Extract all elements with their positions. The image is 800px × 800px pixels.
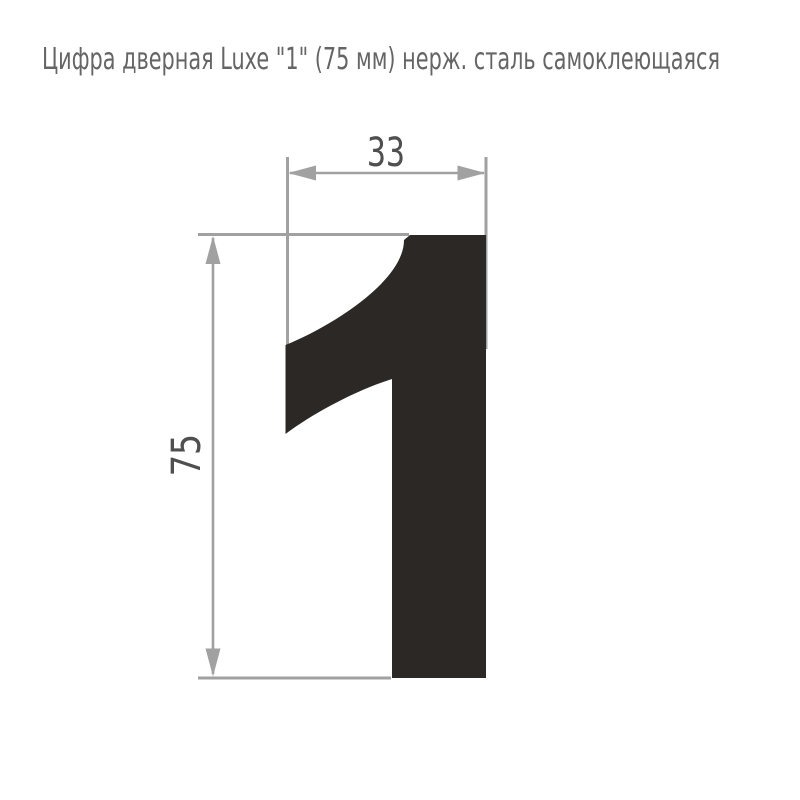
width-arrowhead-right-icon bbox=[458, 166, 486, 181]
height-dimension-label: 75 bbox=[164, 434, 210, 476]
product-title: Цифра дверная Luxe "1" (75 мм) нерж. ста… bbox=[42, 42, 720, 77]
drawing-canvas: Цифра дверная Luxe "1" (75 мм) нерж. ста… bbox=[0, 0, 800, 800]
height-arrowhead-top-icon bbox=[206, 236, 221, 264]
technical-drawing: Цифра дверная Luxe "1" (75 мм) нерж. ста… bbox=[0, 0, 800, 800]
width-arrowhead-left-icon bbox=[288, 166, 316, 181]
height-arrowhead-bottom-icon bbox=[206, 649, 221, 677]
width-dimension-label: 33 bbox=[367, 130, 405, 176]
digit-1-shape bbox=[286, 235, 487, 678]
